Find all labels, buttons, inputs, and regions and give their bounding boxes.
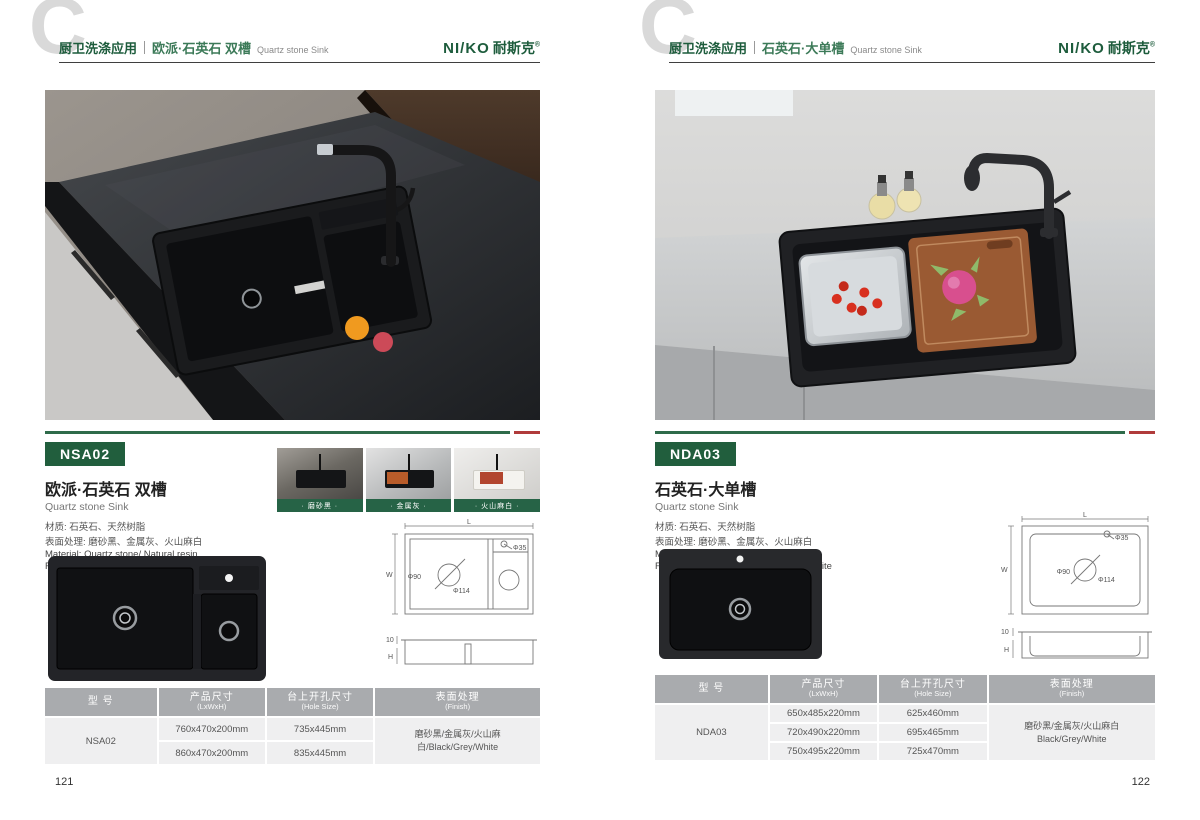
accent-divider <box>655 431 1155 434</box>
header-rule <box>669 62 1155 63</box>
registered-mark-icon: ® <box>535 42 540 49</box>
header-rule <box>59 62 540 63</box>
series-title-cn: 石英石·大单槽 <box>762 38 844 57</box>
swatch-frosted-black: · 磨砂黑 · <box>277 448 363 512</box>
dim-label-faucet-hole: Φ35 <box>513 545 526 552</box>
table-cell-hole: 695x465mm <box>879 724 986 741</box>
header-titles: 厨卫洗涤应用 欧派·石英石 双槽 Quartz stone Sink <box>59 38 329 57</box>
page-number: 121 <box>55 776 73 788</box>
series-title-en: Quartz stone Sink <box>850 45 922 55</box>
dim-label-length: L <box>1083 512 1087 519</box>
product-name-en: Quartz stone Sink <box>45 501 295 513</box>
dim-label-drain: Φ90 <box>1057 569 1070 576</box>
product-name-cn: 石英石·大单槽 <box>655 476 905 500</box>
hero-scene-left <box>45 90 540 420</box>
faucet-hole <box>225 574 233 582</box>
table-header-model: 型 号 <box>655 675 768 703</box>
table-cell-finish: 磨砂黑/金属灰/火山麻白/Black/Grey/White <box>375 718 540 764</box>
spec-table: 型 号 产品尺寸(LxWxH) 台上开孔尺寸(Hole Size) 表面处理(F… <box>655 675 1155 760</box>
mini-sink <box>296 470 346 487</box>
mini-board <box>480 472 503 483</box>
category-title: 厨卫洗涤应用 <box>669 38 747 57</box>
brand-logo-latin: NI/KO <box>443 40 490 57</box>
spec-material-cn: 材质: 石英石、天然树脂 <box>655 519 905 533</box>
mini-board <box>387 472 408 483</box>
table-cell-hole: 625x460mm <box>879 705 986 722</box>
spec-finish-cn: 表面处理: 磨砂黑、金属灰、火山麻白 <box>655 534 905 548</box>
dim-label-length: L <box>467 519 471 526</box>
dim-label-cutout: Φ114 <box>1098 577 1115 584</box>
table-cell-size: 720x490x220mm <box>770 724 877 741</box>
dim-label-cutout: Φ114 <box>453 588 470 595</box>
swatch-image <box>366 448 452 499</box>
table-header-finish: 表面处理(Finish) <box>989 675 1155 703</box>
swatch-image <box>454 448 540 499</box>
swatch-metal-gray: · 金属灰 · <box>366 448 452 512</box>
dim-label-lip: 10 <box>1001 629 1009 636</box>
brand-logo: NI/KO耐斯克® <box>443 38 540 58</box>
table-cell-hole: 725x470mm <box>879 743 986 760</box>
hero-scene-right <box>655 90 1155 420</box>
dim-label-drain: Φ90 <box>408 574 421 581</box>
table-header-finish: 表面处理(Finish) <box>375 688 540 716</box>
drain <box>730 599 750 619</box>
drain <box>220 622 238 640</box>
drain <box>114 607 136 629</box>
swatch-label: · 磨砂黑 · <box>277 499 363 512</box>
table-cell-hole: 735x445mm <box>267 718 373 740</box>
table-header-size: 产品尺寸(LxWxH) <box>159 688 265 716</box>
brand-logo-cn: 耐斯克 <box>1108 40 1150 56</box>
table-header-hole: 台上开孔尺寸(Hole Size) <box>267 688 373 716</box>
model-badge: NSA02 <box>45 442 125 466</box>
header-divider <box>754 41 755 54</box>
page-left: C 厨卫洗涤应用 欧派·石英石 双槽 Quartz stone Sink NI/… <box>45 0 540 820</box>
product-render-single-sink <box>658 548 823 660</box>
table-cell-size: 750x495x220mm <box>770 743 877 760</box>
header-titles: 厨卫洗涤应用 石英石·大单槽 Quartz stone Sink <box>669 38 922 57</box>
product-info: NSA02 欧派·石英石 双槽 Quartz stone Sink 材质: 石英… <box>45 442 295 573</box>
table-cell-size: 760x470x200mm <box>159 718 265 740</box>
table-cell-model: NSA02 <box>45 718 157 764</box>
swatch-image <box>277 448 363 499</box>
brand-logo-latin: NI/KO <box>1058 40 1105 57</box>
table-header-size: 产品尺寸(LxWxH) <box>770 675 877 703</box>
single-sink <box>779 208 1076 387</box>
product-render-double-sink <box>47 555 267 682</box>
model-badge: NDA03 <box>655 442 736 466</box>
dim-label-height: H <box>1004 647 1009 654</box>
technical-drawing-single: L W Φ35 Φ90 Φ114 10 H <box>1000 512 1160 664</box>
page-number: 122 <box>1132 776 1150 788</box>
product-render-svg <box>658 548 823 660</box>
table-cell-size: 860x470x200mm <box>159 742 265 764</box>
table-cell-size: 650x485x220mm <box>770 705 877 722</box>
technical-drawing-double: L W Φ35 Φ90 Φ114 10 H <box>385 518 543 670</box>
brand-logo: NI/KO耐斯克® <box>1058 38 1155 58</box>
category-title: 厨卫洗涤应用 <box>59 38 137 57</box>
series-title-en: Quartz stone Sink <box>257 45 329 55</box>
table-cell-finish: 磨砂黑/金属灰/火山麻白Black/Grey/White <box>989 705 1155 760</box>
swatch-label: · 火山麻白 · <box>454 499 540 512</box>
cabinet-seam <box>713 346 715 420</box>
table-header-model: 型 号 <box>45 688 157 716</box>
product-name-cn: 欧派·石英石 双槽 <box>45 476 295 500</box>
page-header: C 厨卫洗涤应用 欧派·石英石 双槽 Quartz stone Sink NI/… <box>45 0 540 72</box>
mini-faucet <box>319 454 321 471</box>
dim-label-lip: 10 <box>386 637 394 644</box>
accent-divider <box>45 431 540 434</box>
page-header: C 厨卫洗涤应用 石英石·大单槽 Quartz stone Sink NI/KO… <box>655 0 1155 72</box>
dim-label-width: W <box>1001 567 1008 574</box>
swatch-dot-white: · 火山麻白 · <box>454 448 540 512</box>
finish-swatches: · 磨砂黑 · · 金属灰 · · 火山麻白 · <box>277 448 540 512</box>
technical-drawing-svg: L W Φ35 Φ90 Φ114 10 H <box>385 518 543 670</box>
table-header-hole: 台上开孔尺寸(Hole Size) <box>879 675 986 703</box>
mini-faucet <box>496 454 498 471</box>
swatch-label: · 金属灰 · <box>366 499 452 512</box>
technical-drawing-svg: L W Φ35 Φ90 Φ114 10 H <box>1000 512 1160 664</box>
accent-divider-red <box>514 431 540 434</box>
product-render-svg <box>47 555 267 682</box>
page-right: C 厨卫洗涤应用 石英石·大单槽 Quartz stone Sink NI/KO… <box>655 0 1155 820</box>
spec-finish-cn: 表面处理: 磨砂黑、金属灰、火山麻白 <box>45 534 295 548</box>
hero-photo-single-sink <box>655 90 1155 420</box>
table-cell-model: NDA03 <box>655 705 768 760</box>
mini-faucet <box>408 454 410 471</box>
table-cell-hole: 835x445mm <box>267 742 373 764</box>
registered-mark-icon: ® <box>1150 42 1155 49</box>
series-title-cn: 欧派·石英石 双槽 <box>152 38 251 57</box>
orange-fruit <box>345 316 369 340</box>
hero-photo-double-sink <box>45 90 540 420</box>
spec-table: 型 号 产品尺寸(LxWxH) 台上开孔尺寸(Hole Size) 表面处理(F… <box>45 688 540 764</box>
dim-label-height: H <box>388 654 393 661</box>
window <box>675 90 793 116</box>
faucet-hole <box>737 556 744 563</box>
dim-label-width: W <box>386 572 393 579</box>
dim-label-faucet-hole: Φ35 <box>1115 535 1128 542</box>
spec-material-cn: 材质: 石英石、天然树脂 <box>45 519 295 533</box>
product-name-en: Quartz stone Sink <box>655 501 905 513</box>
apple-fruit <box>373 332 393 352</box>
header-divider <box>144 41 145 54</box>
accent-divider-red <box>1129 431 1155 434</box>
brand-logo-cn: 耐斯克 <box>493 40 535 56</box>
